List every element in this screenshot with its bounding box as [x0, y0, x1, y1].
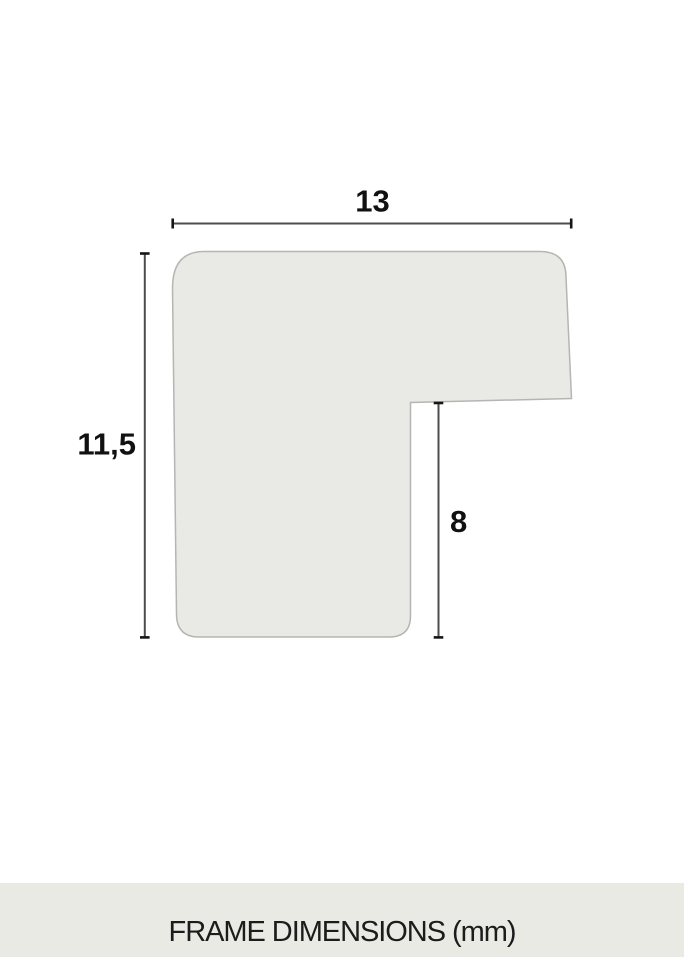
svg-text:8: 8 [450, 504, 467, 539]
svg-text:11,5: 11,5 [77, 427, 136, 462]
svg-text:13: 13 [355, 184, 389, 219]
